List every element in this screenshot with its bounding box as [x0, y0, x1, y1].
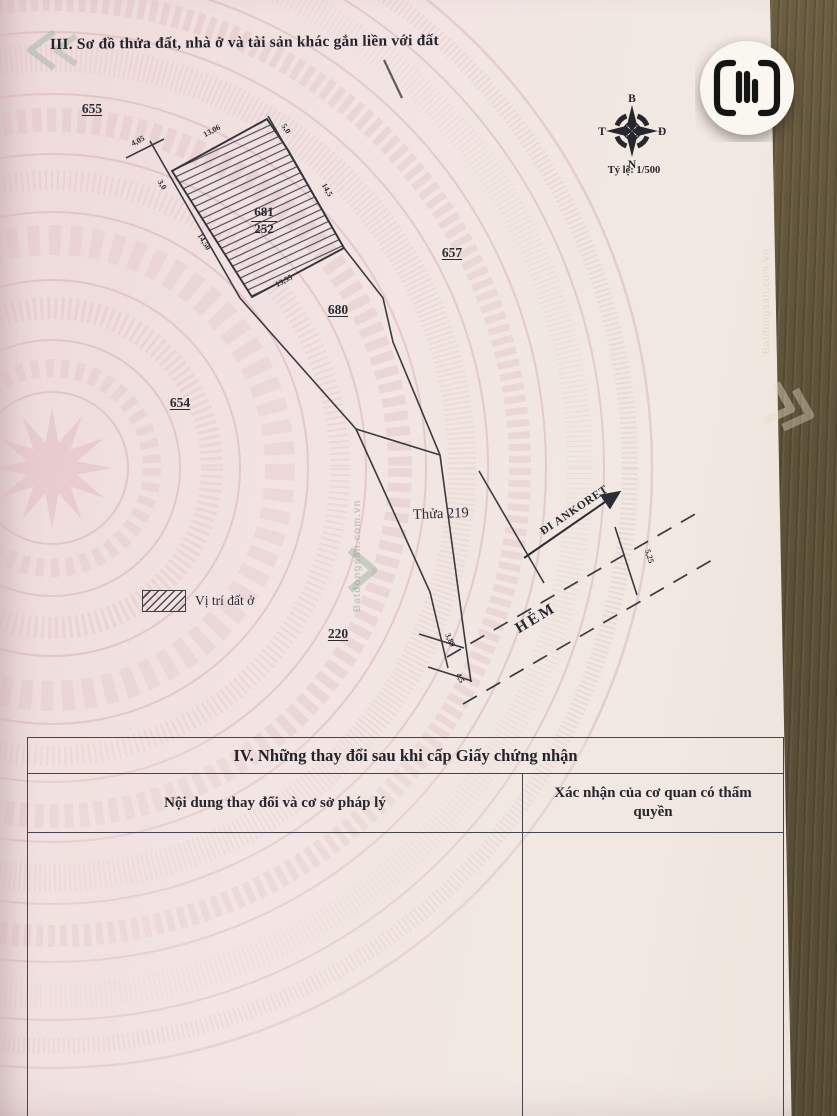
- scanned-land-certificate-page: Batdongsan.com.vn: [0, 0, 837, 1116]
- parcel-label-654: 654: [158, 395, 202, 411]
- strip-end-tick-a: [419, 634, 464, 648]
- map-scale-label: Tỷ lệ: 1/500: [582, 165, 686, 176]
- compass-west-label: T: [598, 126, 606, 138]
- table-empty-body: [28, 833, 783, 1116]
- road-width-segment: [615, 527, 637, 595]
- dim-end-tick-b: 4,5: [454, 672, 466, 685]
- parcel-label-680: 680: [316, 302, 360, 318]
- road-label: ĐI ANKORET: [538, 483, 610, 537]
- legend-hatch-swatch: [142, 590, 186, 612]
- parcel-657-boundary: [479, 471, 544, 583]
- parcel-label-thua-219: Thửa 219: [413, 505, 469, 524]
- alley-dashed-line-1: [447, 509, 704, 657]
- highlighted-lot-fraction: 681 252: [245, 205, 283, 237]
- brand-scan-badge: [695, 36, 801, 142]
- road-direction-arrow: [524, 493, 618, 558]
- alley-label: HẺM: [512, 599, 559, 637]
- section-iv-title: IV. Những thay đổi sau khi cấp Giấy chứn…: [28, 738, 783, 774]
- parcel-label-657: 657: [430, 245, 474, 261]
- dim-hatch-left: 14,50: [196, 232, 213, 252]
- lot-area: 252: [245, 222, 283, 237]
- dim-hatch-top: 13,06: [202, 123, 222, 139]
- column-header-authority-confirmation: Xác nhận của cơ quan có thẩm quyền: [523, 774, 783, 832]
- parcel-label-220: 220: [316, 626, 360, 642]
- dim-strip-left: 3,0: [156, 178, 169, 191]
- table-empty-cell-left: [28, 833, 523, 1116]
- table-empty-cell-right: [523, 833, 783, 1116]
- dim-road-width: 5,25: [643, 548, 656, 564]
- compass-east-label: Đ: [658, 126, 666, 138]
- legend-label: Vị trí đất ở: [195, 593, 254, 609]
- legend: Vị trí đất ở: [142, 590, 254, 612]
- section-iv-table: IV. Những thay đổi sau khi cấp Giấy chứn…: [27, 737, 784, 1116]
- alley-dashed-line-2: [463, 556, 719, 704]
- compass-rose-icon: [606, 105, 658, 157]
- dim-hatch-top-right: 5,0: [280, 122, 293, 135]
- lot-number: 681: [251, 205, 277, 222]
- parcel-label-655: 655: [70, 101, 114, 117]
- dim-hatch-right: 14,5: [320, 181, 335, 198]
- pen-mark: [384, 60, 402, 98]
- compass-north-label: B: [628, 93, 636, 105]
- column-header-content-changes: Nội dung thay đổi và cơ sở pháp lý: [28, 774, 523, 832]
- brand-chevron-watermark-right: [758, 378, 828, 448]
- dim-top-tick: 4,05: [130, 134, 147, 148]
- parcel-680-219-divider: [356, 429, 440, 455]
